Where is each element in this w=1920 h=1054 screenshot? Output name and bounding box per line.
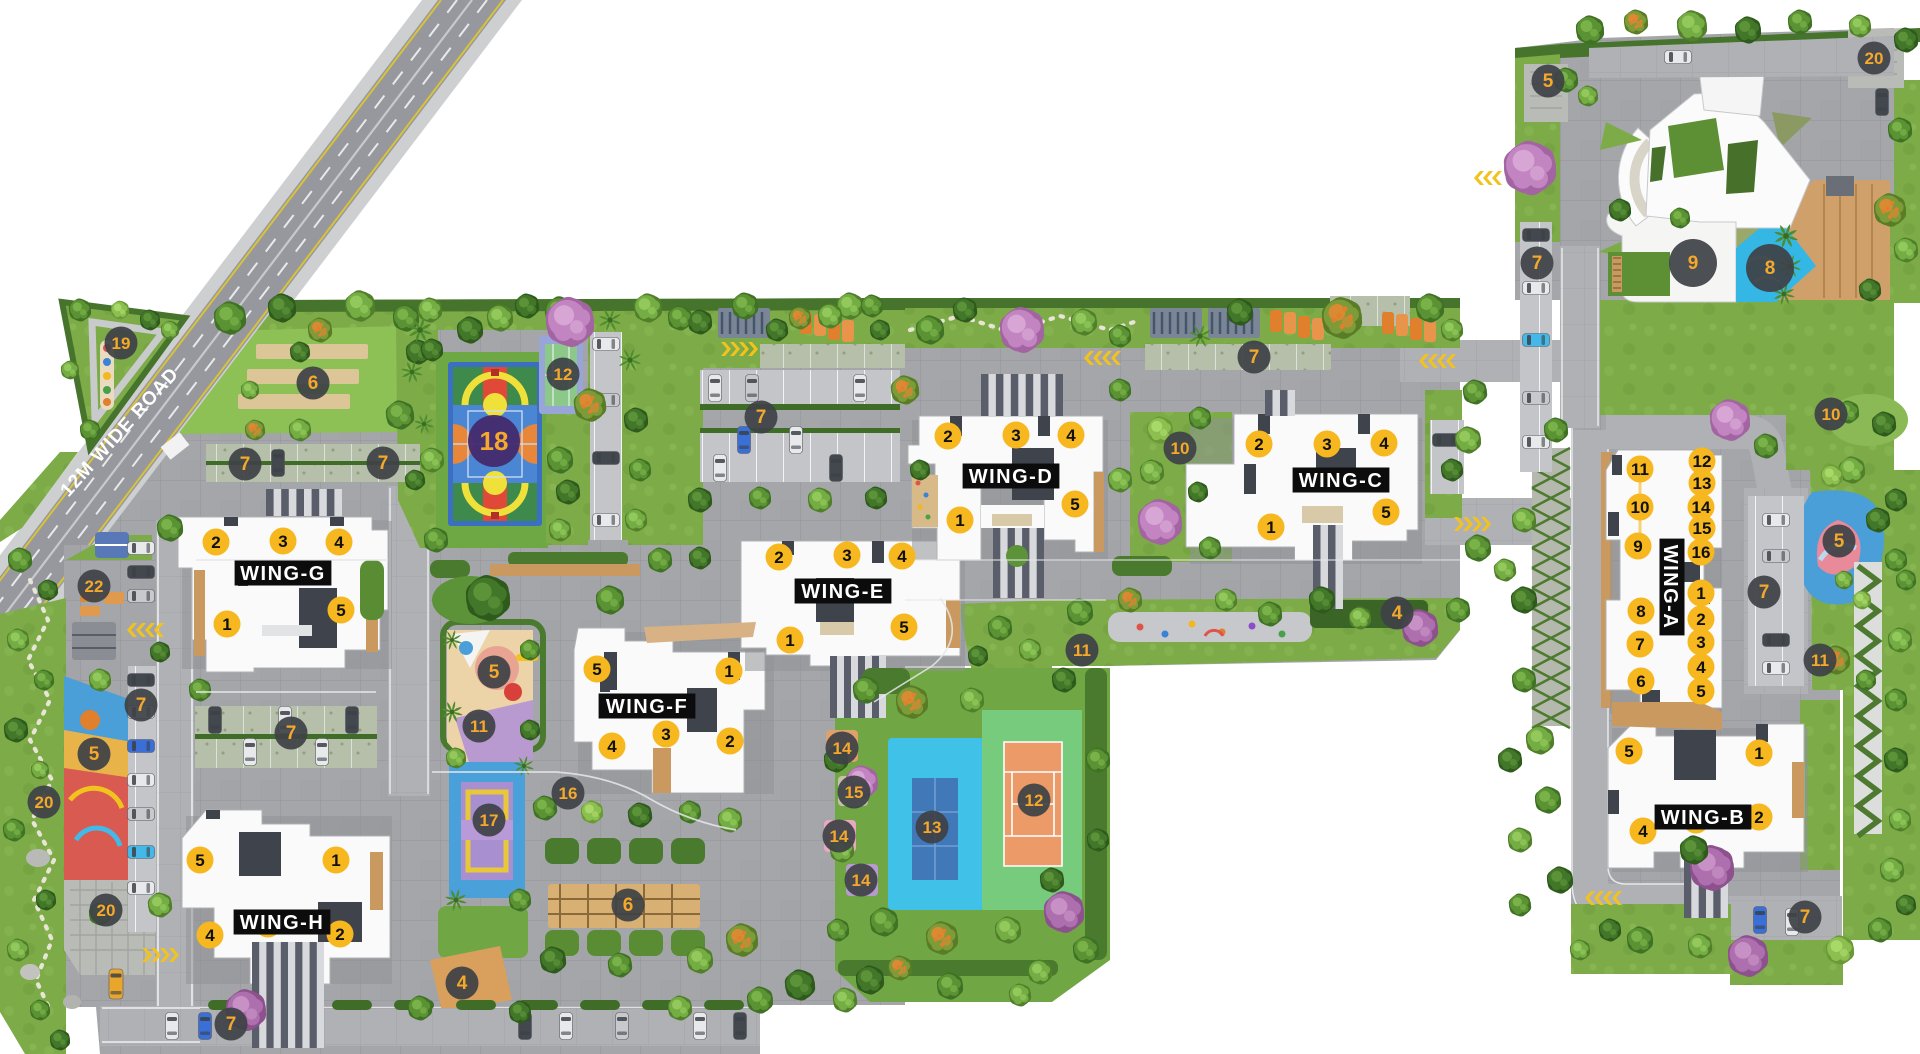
svg-text:5: 5 [1834, 531, 1845, 552]
svg-text:1: 1 [331, 851, 340, 870]
svg-text:10: 10 [1631, 498, 1650, 517]
svg-text:12: 12 [1693, 452, 1712, 471]
svg-text:WING-F: WING-F [606, 696, 688, 718]
svg-text:11: 11 [1811, 651, 1829, 670]
svg-text:7: 7 [756, 407, 767, 428]
svg-text:7: 7 [1800, 907, 1811, 928]
svg-text:14: 14 [833, 739, 852, 758]
svg-text:7: 7 [1635, 635, 1644, 654]
svg-text:4: 4 [1379, 434, 1389, 453]
svg-text:5: 5 [489, 662, 500, 683]
svg-text:7: 7 [136, 695, 147, 716]
svg-text:6: 6 [308, 373, 319, 394]
svg-text:4: 4 [1696, 658, 1706, 677]
svg-text:5: 5 [1543, 71, 1554, 92]
svg-text:3: 3 [842, 546, 851, 565]
svg-text:4: 4 [607, 737, 617, 756]
svg-text:7: 7 [226, 1014, 237, 1035]
svg-text:2: 2 [725, 732, 734, 751]
svg-text:16: 16 [1692, 543, 1711, 562]
svg-text:5: 5 [592, 660, 601, 679]
svg-text:4: 4 [1066, 426, 1076, 445]
svg-text:4: 4 [1392, 603, 1403, 624]
svg-text:2: 2 [1754, 808, 1763, 827]
svg-text:1: 1 [1754, 744, 1763, 763]
svg-text:6: 6 [623, 895, 634, 916]
svg-text:5: 5 [336, 601, 345, 620]
svg-text:11: 11 [1073, 641, 1091, 660]
svg-text:4: 4 [205, 926, 215, 945]
svg-text:WING-B: WING-B [1661, 807, 1746, 829]
svg-text:WING-E: WING-E [801, 581, 884, 603]
svg-text:5: 5 [1624, 742, 1633, 761]
svg-text:WING-A: WING-A [1659, 545, 1681, 630]
svg-text:7: 7 [286, 723, 297, 744]
svg-text:11: 11 [1631, 460, 1649, 479]
svg-text:18: 18 [480, 426, 509, 456]
svg-text:20: 20 [35, 793, 54, 812]
svg-text:12: 12 [554, 365, 573, 384]
svg-text:2: 2 [1254, 435, 1263, 454]
svg-text:15: 15 [1693, 519, 1712, 538]
svg-text:7: 7 [1759, 582, 1770, 603]
svg-text:1: 1 [1266, 518, 1275, 537]
svg-text:4: 4 [897, 547, 907, 566]
svg-text:22: 22 [85, 577, 104, 596]
svg-text:2: 2 [335, 925, 344, 944]
svg-text:2: 2 [1696, 610, 1705, 629]
svg-text:1: 1 [724, 662, 733, 681]
svg-text:9: 9 [1633, 537, 1642, 556]
svg-text:WING-G: WING-G [240, 563, 326, 585]
svg-text:7: 7 [240, 454, 251, 475]
svg-text:4: 4 [334, 533, 344, 552]
svg-text:15: 15 [845, 783, 864, 802]
svg-text:8: 8 [1636, 602, 1645, 621]
svg-text:20: 20 [1865, 49, 1884, 68]
svg-text:1: 1 [955, 511, 964, 530]
svg-text:3: 3 [1696, 633, 1705, 652]
svg-text:2: 2 [943, 427, 952, 446]
svg-text:5: 5 [1696, 682, 1705, 701]
svg-text:5: 5 [1070, 495, 1079, 514]
svg-text:14: 14 [1692, 498, 1711, 517]
svg-text:2: 2 [774, 548, 783, 567]
svg-text:3: 3 [661, 725, 670, 744]
svg-text:4: 4 [1638, 822, 1648, 841]
svg-text:16: 16 [559, 784, 578, 803]
svg-text:1: 1 [785, 631, 794, 650]
svg-text:8: 8 [1765, 258, 1776, 279]
svg-text:12: 12 [1025, 791, 1044, 810]
svg-text:6: 6 [1636, 672, 1645, 691]
svg-text:13: 13 [923, 818, 942, 837]
svg-text:WING-D: WING-D [969, 466, 1054, 488]
svg-text:7: 7 [1249, 347, 1260, 368]
svg-text:13: 13 [1693, 474, 1712, 493]
svg-text:1: 1 [1696, 584, 1705, 603]
svg-text:3: 3 [1011, 426, 1020, 445]
svg-text:14: 14 [852, 871, 871, 890]
svg-text:WING-C: WING-C [1299, 470, 1384, 492]
svg-text:7: 7 [1532, 253, 1543, 274]
svg-text:10: 10 [1171, 439, 1190, 458]
svg-text:11: 11 [470, 717, 488, 736]
svg-text:5: 5 [1381, 503, 1390, 522]
svg-text:WING-H: WING-H [240, 912, 325, 934]
svg-text:14: 14 [830, 827, 849, 846]
svg-text:5: 5 [195, 851, 204, 870]
svg-text:7: 7 [378, 453, 389, 474]
svg-text:2: 2 [211, 533, 220, 552]
svg-text:5: 5 [89, 744, 100, 765]
svg-text:19: 19 [112, 334, 131, 353]
svg-text:3: 3 [1322, 435, 1331, 454]
svg-text:10: 10 [1822, 405, 1841, 424]
svg-text:1: 1 [222, 615, 231, 634]
svg-text:20: 20 [97, 901, 116, 920]
svg-text:9: 9 [1688, 253, 1699, 274]
svg-text:4: 4 [457, 973, 468, 994]
svg-text:5: 5 [899, 618, 908, 637]
svg-text:17: 17 [480, 811, 499, 830]
svg-text:3: 3 [278, 532, 287, 551]
